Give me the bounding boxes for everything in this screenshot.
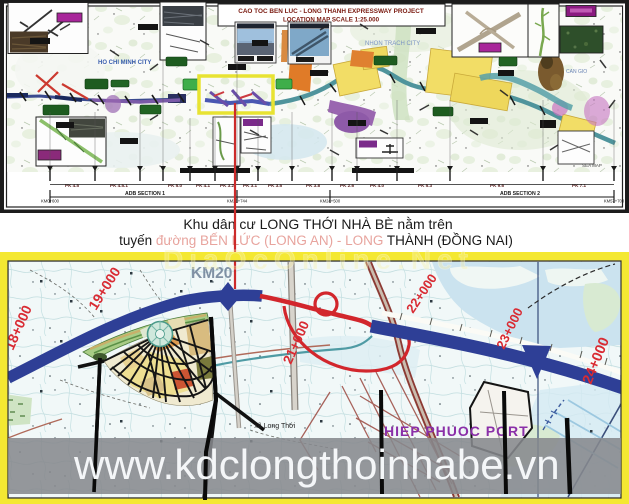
svg-text:PK 9.6: PK 9.6 (490, 183, 504, 188)
svg-text:KM24+500: KM24+500 (320, 199, 341, 204)
svg-text:ADB SECTION 1: ADB SECTION 1 (125, 191, 165, 197)
svg-text:KM57+700: KM57+700 (604, 199, 625, 204)
svg-text:PK 4.5: PK 4.5 (65, 183, 79, 188)
svg-text:PK 2.6: PK 2.6 (340, 183, 354, 188)
svg-text:PK 4.5.1: PK 4.5.1 (110, 183, 128, 188)
svg-text:PK 3.1: PK 3.1 (243, 183, 257, 188)
svg-text:DiaOcOnline.Net: DiaOcOnline.Net (163, 244, 474, 275)
svg-text:HIEP PHUOC PORT: HIEP PHUOC PORT (384, 423, 529, 439)
svg-text:NHON TRACH CITY: NHON TRACH CITY (365, 41, 420, 47)
svg-text:PK 5.3: PK 5.3 (418, 183, 432, 188)
svg-text:PK 5.0: PK 5.0 (168, 183, 182, 188)
svg-text:PK 4.1: PK 4.1 (196, 183, 210, 188)
svg-text:www.kdclongthoinhabe.vn: www.kdclongthoinhabe.vn (73, 441, 560, 488)
svg-text:PK 3.5: PK 3.5 (268, 183, 282, 188)
svg-text:Khu dân cư LONG THỚI NHÀ BÈ nằ: Khu dân cư LONG THỚI NHÀ BÈ nằm trên (183, 216, 452, 232)
svg-text:PK 3.8: PK 3.8 (306, 183, 320, 188)
svg-text:CAN GIO: CAN GIO (566, 69, 587, 75)
svg-text:PK 4.0: PK 4.0 (370, 183, 384, 188)
svg-text:SEA MAP: SEA MAP (582, 163, 602, 168)
svg-text:HO CHI MINH CITY: HO CHI MINH CITY (98, 60, 151, 66)
svg-text:PK 7.1: PK 7.1 (572, 183, 586, 188)
svg-text:KM21+744: KM21+744 (227, 199, 248, 204)
svg-text:ADB SECTION 2: ADB SECTION 2 (500, 191, 540, 197)
svg-text:CAO TOC BEN LUC - LONG THANH E: CAO TOC BEN LUC - LONG THANH EXPRESSWAY … (238, 8, 424, 15)
svg-text:KM0+600: KM0+600 (41, 199, 60, 204)
svg-text:- xã Long Thới: - xã Long Thới (250, 423, 296, 430)
svg-text:PK 3.2: PK 3.2 (220, 183, 234, 188)
